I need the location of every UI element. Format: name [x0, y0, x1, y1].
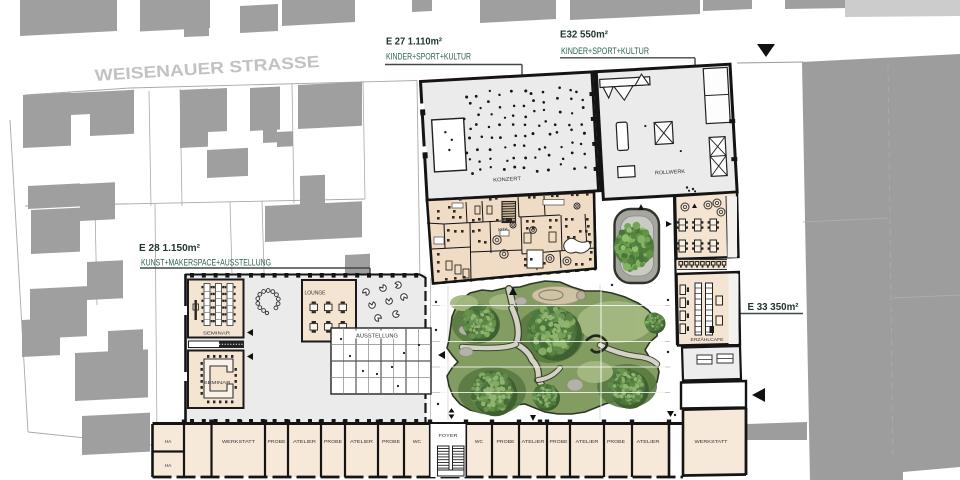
- svg-text:SEMINAR: SEMINAR: [203, 331, 231, 337]
- svg-text:FOYER: FOYER: [439, 433, 459, 439]
- svg-text:ATELIER: ATELIER: [637, 439, 661, 445]
- svg-text:WERKSTATT: WERKSTATT: [222, 439, 255, 445]
- svg-text:ATELIER: ATELIER: [522, 439, 546, 445]
- svg-text:E 33 350m²: E 33 350m²: [748, 301, 799, 313]
- svg-text:KITA: KITA: [498, 227, 508, 232]
- svg-text:E32 550m²: E32 550m²: [560, 29, 608, 41]
- svg-text:KINDER+SPORT+KULTUR: KINDER+SPORT+KULTUR: [561, 46, 649, 56]
- svg-text:ATELIER: ATELIER: [576, 439, 600, 445]
- svg-text:PROBE: PROBE: [382, 439, 401, 445]
- svg-text:PROBE: PROBE: [268, 439, 287, 445]
- svg-text:E 27 1.110m²: E 27 1.110m²: [386, 36, 442, 48]
- svg-text:ERZÄHLCAFE: ERZÄHLCAFE: [691, 336, 724, 342]
- svg-text:PROBE: PROBE: [324, 439, 343, 445]
- svg-text:KUNST+MAKERSPACE+AUSSTELLUNG: KUNST+MAKERSPACE+AUSSTELLUNG: [141, 258, 271, 268]
- svg-text:E 28 1.150m²: E 28 1.150m²: [139, 242, 200, 254]
- svg-text:KINDER+SPORT+KULTUR: KINDER+SPORT+KULTUR: [386, 52, 471, 62]
- svg-text:PROBE: PROBE: [550, 439, 569, 445]
- svg-text:WERKSTATT: WERKSTATT: [695, 439, 728, 445]
- svg-text:PROBE: PROBE: [497, 439, 516, 445]
- svg-text:WC: WC: [475, 439, 484, 445]
- svg-text:ATELIER: ATELIER: [350, 439, 374, 445]
- svg-text:AUSSTELLUNG: AUSSTELLUNG: [356, 334, 398, 340]
- svg-text:HA: HA: [165, 439, 172, 445]
- svg-text:SEMINAR: SEMINAR: [204, 380, 232, 386]
- svg-text:HA: HA: [165, 463, 172, 469]
- svg-text:LOUNGE: LOUNGE: [305, 291, 326, 297]
- svg-text:PROBE: PROBE: [607, 439, 626, 445]
- svg-text:ATELIER: ATELIER: [293, 439, 317, 445]
- svg-text:WC: WC: [413, 439, 422, 445]
